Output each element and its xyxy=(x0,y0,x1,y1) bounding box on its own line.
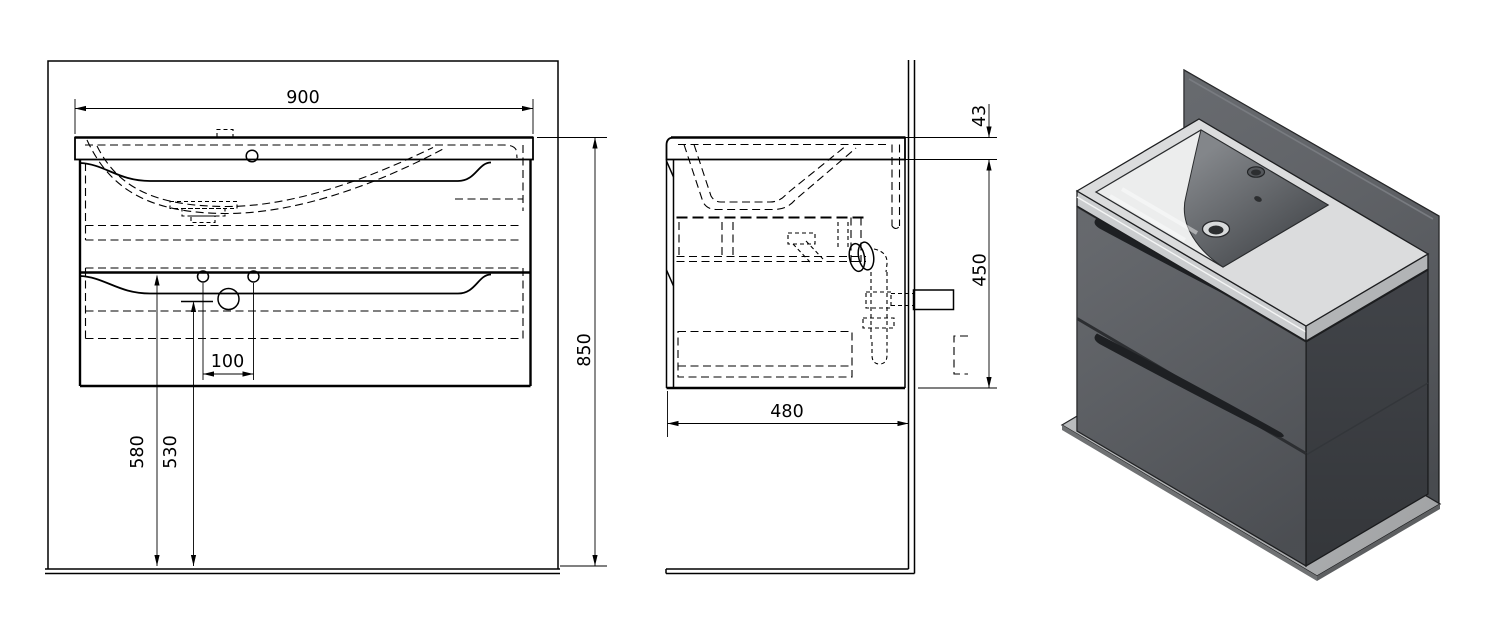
side-worktop xyxy=(667,138,906,160)
faucet-hole-mark xyxy=(217,130,233,138)
front-drawer2-recess xyxy=(80,275,491,294)
basin-bowl-outer xyxy=(87,140,443,214)
side-siphon-plumbing xyxy=(788,222,954,364)
dimension-side-cabinet-height: 450 xyxy=(918,160,997,389)
dim-side-depth-label: 480 xyxy=(770,402,803,422)
side-cabinet-body xyxy=(667,160,906,389)
front-cabinet-body xyxy=(80,160,531,386)
front-hidden-lines xyxy=(85,130,523,339)
technical-drawing-page: 900 850 580 530 xyxy=(0,0,1500,630)
side-hidden-lines xyxy=(677,145,969,378)
wall-drain-outlet xyxy=(914,290,954,310)
iso-drain-hole xyxy=(1209,226,1224,235)
basin-bowl-inner xyxy=(97,146,433,207)
dimension-front-hole-spacing: 100 xyxy=(203,283,254,380)
dimension-front-drain-height: 530 xyxy=(161,301,196,566)
vanity-drawing: 900 850 580 530 xyxy=(0,0,1500,630)
dimension-front-overall-height: 850 xyxy=(537,138,607,567)
iso-faucet-hole-inner xyxy=(1251,170,1261,176)
dim-front-drawer-top-label: 580 xyxy=(128,435,148,468)
dimension-side-worktop-thickness: 43 xyxy=(905,104,997,160)
front-view: 900 850 580 530 xyxy=(45,61,607,574)
dim-front-drain-height-label: 530 xyxy=(161,435,181,468)
drain-knockout-hole xyxy=(218,289,239,310)
dimension-front-drawer-top-height: 580 xyxy=(128,275,160,567)
dimension-front-width: 900 xyxy=(75,88,533,134)
iso-view xyxy=(1062,70,1440,581)
dimension-side-depth: 480 xyxy=(668,391,909,437)
dim-front-hole-spacing-label: 100 xyxy=(211,352,244,372)
front-worktop xyxy=(75,138,533,160)
dim-side-cabinet-height-label: 450 xyxy=(971,253,991,286)
dim-front-width-label: 900 xyxy=(286,88,319,108)
dim-front-overall-height-label: 850 xyxy=(575,333,595,366)
dim-side-worktop-thickness-label: 43 xyxy=(970,105,990,127)
front-drawer1-recess xyxy=(80,163,491,182)
side-view: 43 450 480 xyxy=(666,60,997,574)
